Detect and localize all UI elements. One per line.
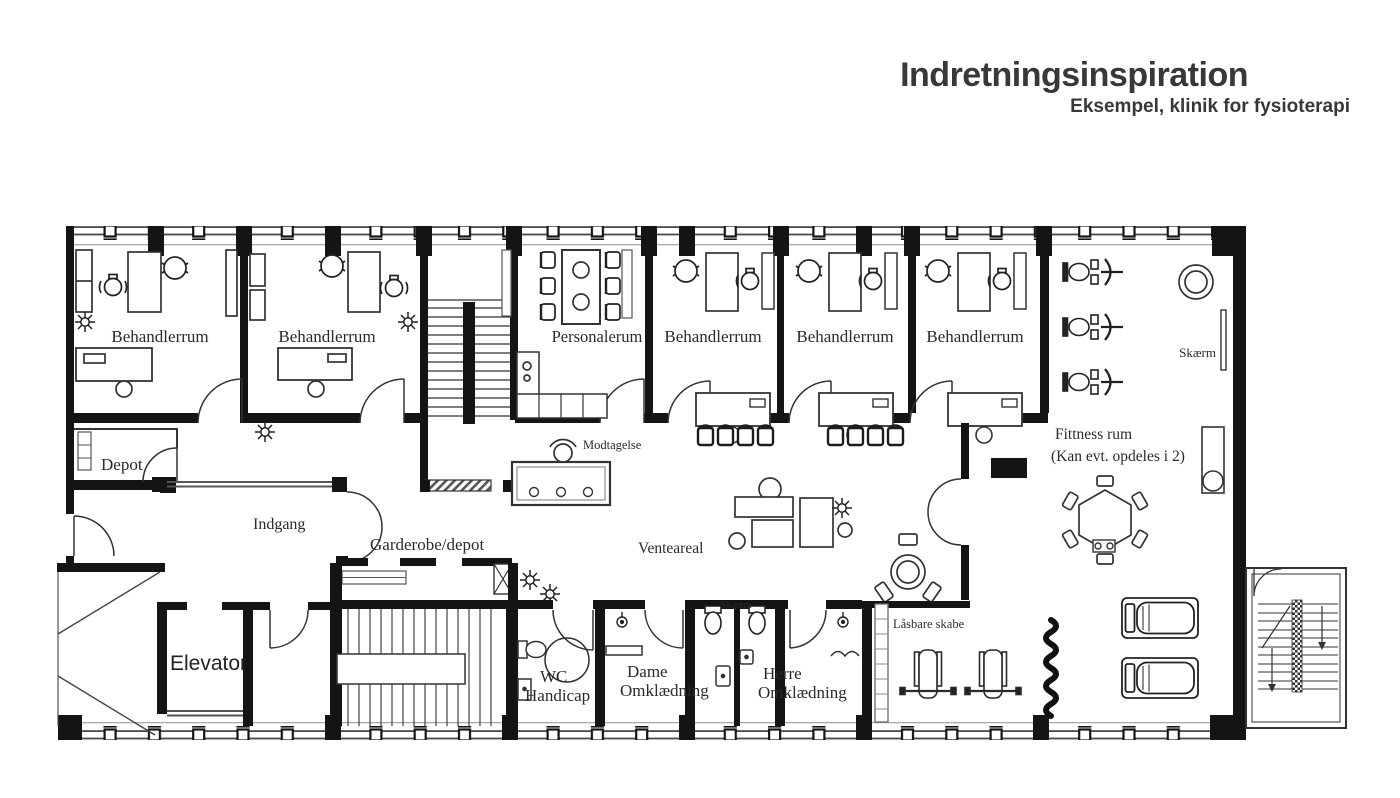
room-label-behandlerrum-3: Behandlerrum [664,327,761,346]
plant-icon [398,312,418,332]
room-label-indgang: Indgang [253,516,305,533]
room-label-dame-line1: Dame [627,662,668,681]
room-label-wc-line1: WC [540,667,567,686]
page-subtitle: Eksempel, klinik for fysioterapi [1070,96,1350,117]
page-title: Indretningsinspiration [900,56,1248,94]
treatment-room-3 [673,253,774,443]
floor-plan-page: Behandlerrum Behandlerrum Personalerum B… [0,0,1400,798]
title-block: Indretningsinspiration Eksempel, klinik … [900,56,1350,117]
exercise-machine-icon [1063,369,1123,395]
room-label-garderobe: Garderobe/depot [370,535,485,554]
treadmill-icon [1122,598,1198,638]
plant-icon [75,312,95,332]
room-label-elevator: Elevator [170,652,247,675]
flex-bar [1046,620,1056,716]
room-label-personalerum: Personalerum [552,327,643,346]
room-label-herre-line2: Omklædning [758,683,847,702]
stairs-annex [1246,568,1346,728]
wall-screen [1221,310,1226,370]
waiting-chairs-row-2 [828,426,903,446]
treatment-room-5 [925,253,1026,443]
room-label-behandlerrum-4: Behandlerrum [796,327,893,346]
mini-equipment [1093,540,1115,552]
stairs-lower [332,600,518,726]
annotation-laasbare-skabe: Låsbare skabe [893,617,965,631]
lockers [875,604,888,722]
plant-icon [520,570,540,590]
plant-icon [832,498,852,518]
toilet-icon [518,641,546,658]
side-room [253,563,342,726]
wardrobe-area [342,558,560,604]
room-label-herre-line1: Herre [763,664,802,683]
treatment-room-1 [75,250,237,397]
toilet-icon [705,606,721,634]
treatment-room-4 [796,253,897,443]
shower-icon [838,612,848,627]
reception-chair [550,439,576,462]
treadmill-icon [1122,658,1198,698]
room-label-behandlerrum-1: Behandlerrum [111,327,208,346]
exercise-ball [1179,265,1213,299]
room-label-behandlerrum-5: Behandlerrum [926,327,1023,346]
room-label-modtagelse: Modtagelse [583,438,642,452]
room-label-behandlerrum-2: Behandlerrum [278,327,375,346]
plant-icon [255,422,275,442]
room-label-wc-line2: Handicap [525,686,590,705]
male-changing-room [790,610,859,656]
room-label-fitness-line1: Fittness rum [1055,426,1132,443]
stairwell-upper [420,250,518,492]
weight-bench-icon [900,650,956,698]
cabinet [1202,427,1224,493]
female-changing-room [606,610,683,655]
room-label-dame-line2: Omklædning [620,681,709,700]
entrance [74,422,382,566]
waiting-area-furniture [729,478,942,603]
room-label-venteareal: Venteareal [638,540,703,557]
room-label-fitness-line2: (Kan evt. opdeles i 2) [1051,448,1185,465]
annotation-skaerm-stalls: Skærm [720,599,752,611]
room-label-depot: Depot [101,455,143,474]
exercise-machine-icon [1063,259,1123,285]
treatment-room-2 [250,252,418,397]
weight-bench-icon [965,650,1021,698]
exercise-machine-icon [1063,314,1123,340]
annotation-skaerm: Skærm [1179,345,1216,360]
shower-icon [617,612,627,627]
round-table [874,534,941,603]
ramp [58,572,160,735]
